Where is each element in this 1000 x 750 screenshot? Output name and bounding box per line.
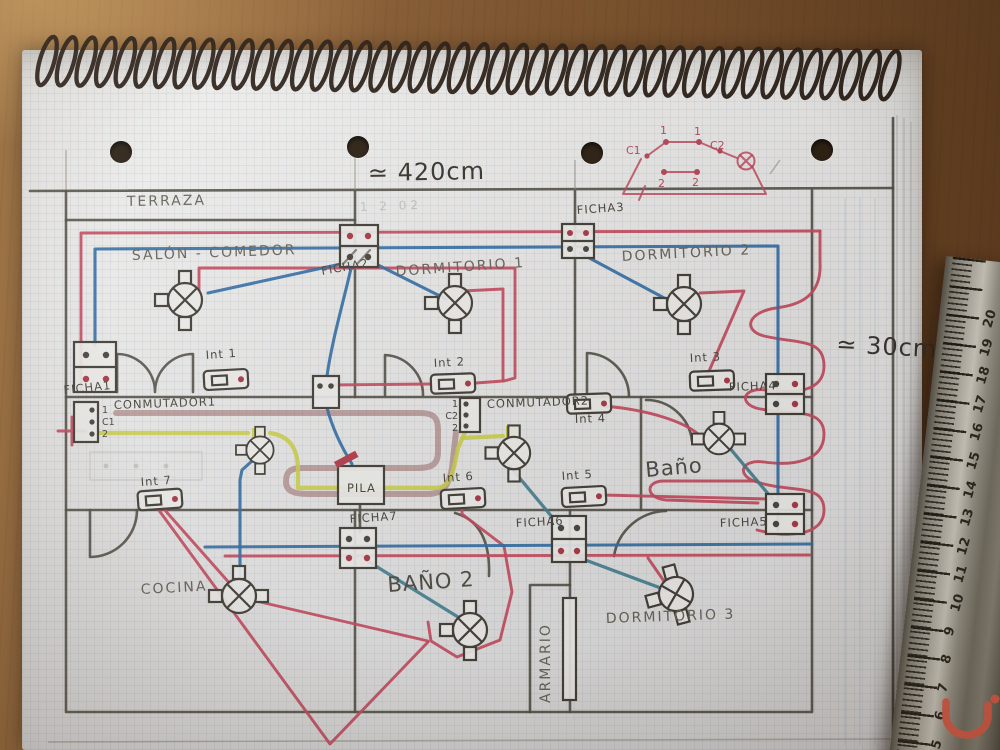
watermark-logo [946,695,1000,736]
watermark-layer [0,0,1000,750]
photo-scene: ≃ 420cm ≃ 30cm TERRAZA SALÓN - COMEDOR D… [0,0,1000,750]
